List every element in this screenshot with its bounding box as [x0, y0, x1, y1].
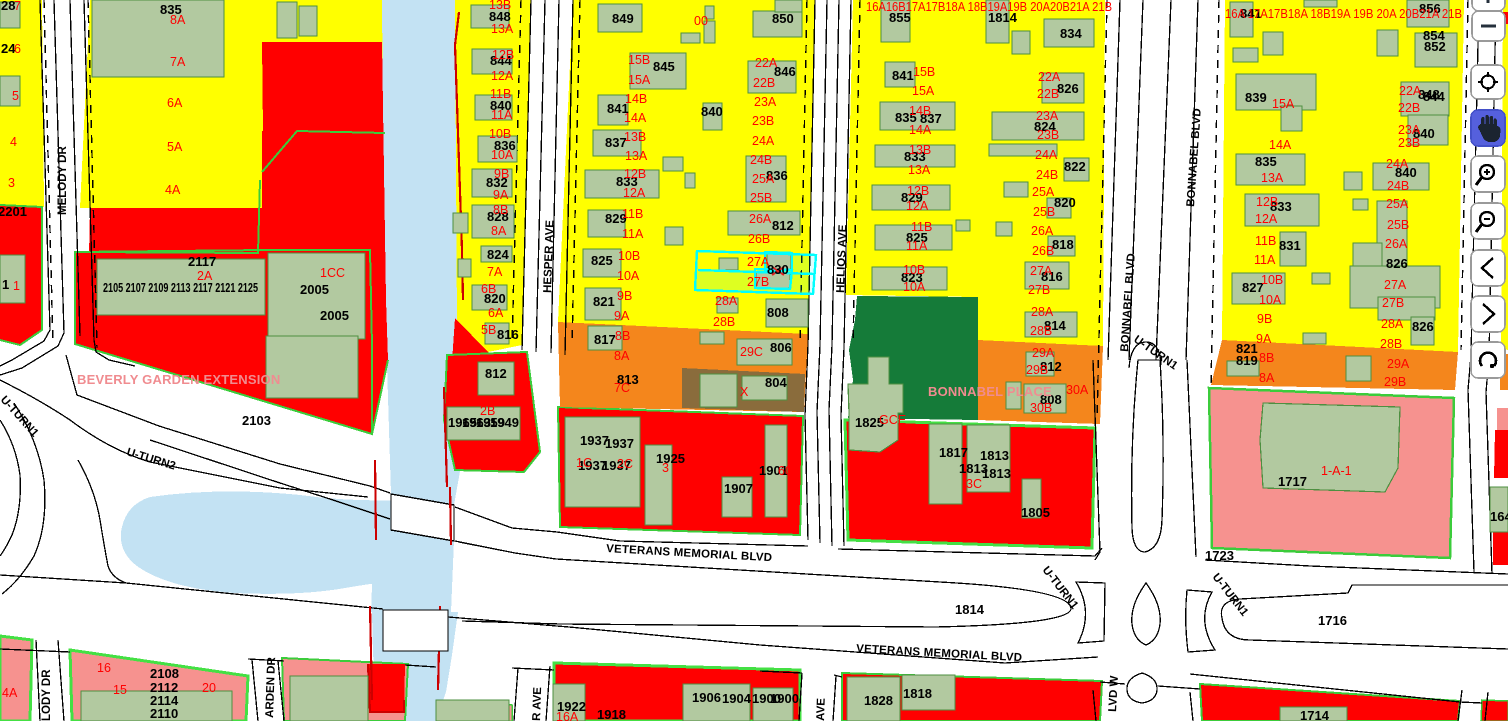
svg-text:7A: 7A — [170, 55, 186, 69]
svg-text:4A: 4A — [2, 686, 18, 700]
svg-text:14B: 14B — [909, 104, 931, 118]
svg-text:852: 852 — [1424, 39, 1446, 54]
svg-text:2108: 2108 — [150, 666, 179, 681]
svg-text:ARDEN DR: ARDEN DR — [264, 656, 278, 718]
svg-text:804: 804 — [765, 375, 787, 390]
svg-text:1-A-1: 1-A-1 — [1321, 464, 1352, 478]
svg-text:2B: 2B — [480, 404, 495, 418]
svg-text:14B: 14B — [625, 92, 647, 106]
svg-text:15A: 15A — [628, 73, 651, 87]
svg-text:830: 830 — [767, 262, 789, 277]
svg-text:2105 2107 2109 2113 2117 2121: 2105 2107 2109 2113 2117 2121 2125 — [103, 280, 258, 295]
svg-text:14A: 14A — [624, 111, 647, 125]
svg-text:8A: 8A — [614, 349, 630, 363]
svg-text:25A: 25A — [1386, 197, 1409, 211]
svg-text:825: 825 — [591, 253, 613, 268]
svg-text:1717: 1717 — [1278, 474, 1307, 489]
svg-text:1805: 1805 — [1021, 505, 1050, 520]
svg-text:8B: 8B — [1259, 351, 1274, 365]
svg-text:29A: 29A — [1387, 357, 1410, 371]
svg-text:60: 60 — [778, 464, 792, 478]
svg-text:26B: 26B — [748, 232, 770, 246]
svg-text:12A: 12A — [491, 69, 514, 83]
svg-text:1937: 1937 — [605, 436, 634, 451]
svg-text:15A: 15A — [912, 84, 935, 98]
svg-text:12A: 12A — [623, 186, 646, 200]
svg-text:13A: 13A — [491, 22, 514, 36]
svg-text:22A: 22A — [755, 56, 778, 70]
svg-text:26B: 26B — [1032, 244, 1054, 258]
svg-text:25A: 25A — [752, 172, 775, 186]
svg-text:12B: 12B — [907, 184, 929, 198]
svg-text:9B: 9B — [494, 167, 509, 181]
svg-text:819: 819 — [1236, 353, 1258, 368]
svg-text:845: 845 — [653, 59, 675, 74]
svg-text:13B: 13B — [489, 0, 511, 12]
svg-text:AVE: AVE — [815, 698, 828, 721]
svg-text:28B: 28B — [713, 315, 735, 329]
svg-text:11A: 11A — [1254, 253, 1276, 267]
svg-text:11A: 11A — [491, 108, 513, 122]
svg-text:22A: 22A — [1399, 84, 1422, 98]
svg-text:831: 831 — [1279, 238, 1301, 253]
svg-text:1907: 1907 — [724, 481, 753, 496]
svg-text:10B: 10B — [489, 127, 511, 141]
svg-text:23A: 23A — [754, 95, 777, 109]
svg-text:4: 4 — [10, 135, 17, 149]
svg-text:8A: 8A — [170, 13, 186, 27]
svg-text:16A16B17A17B18A 18B19A19B 20A2: 16A16B17A17B18A 18B19A19B 20A20B21A 21B — [866, 0, 1112, 14]
svg-text:13B: 13B — [909, 143, 931, 157]
svg-text:23B: 23B — [752, 114, 774, 128]
svg-text:849: 849 — [612, 11, 634, 26]
svg-text:11A: 11A — [906, 239, 928, 253]
svg-text:10B: 10B — [903, 263, 925, 277]
svg-text:10A: 10A — [491, 148, 514, 162]
svg-text:1813: 1813 — [982, 466, 1011, 481]
svg-text:25B: 25B — [1033, 205, 1055, 219]
svg-text:28A: 28A — [715, 294, 738, 308]
svg-text:1904: 1904 — [722, 691, 752, 706]
svg-text:2110: 2110 — [150, 706, 178, 721]
svg-text:1817: 1817 — [939, 445, 968, 460]
svg-text:10B: 10B — [1261, 273, 1283, 287]
svg-text:22B: 22B — [753, 76, 775, 90]
svg-text:1900: 1900 — [770, 691, 799, 706]
svg-text:13A: 13A — [1261, 171, 1284, 185]
svg-text:X: X — [740, 385, 749, 399]
svg-text:HELIOS AVE: HELIOS AVE — [835, 224, 849, 293]
svg-text:26A: 26A — [1031, 224, 1054, 238]
svg-text:12B: 12B — [624, 167, 646, 181]
svg-text:28A: 28A — [1031, 305, 1054, 319]
svg-text:1828: 1828 — [864, 693, 893, 708]
svg-text:1918: 1918 — [597, 707, 626, 721]
svg-text:834: 834 — [1060, 26, 1082, 41]
svg-text:1723: 1723 — [1205, 548, 1234, 563]
svg-text:7C: 7C — [614, 381, 630, 395]
svg-text:00: 00 — [694, 14, 708, 28]
svg-text:1714: 1714 — [1300, 708, 1330, 721]
svg-text:BEVERLY GARDEN EXTENSION: BEVERLY GARDEN EXTENSION — [77, 372, 280, 387]
svg-text:LVD W: LVD W — [1107, 675, 1121, 712]
svg-text:841: 841 — [892, 68, 914, 83]
svg-text:MELODY DR: MELODY DR — [57, 146, 69, 215]
svg-text:1814: 1814 — [955, 602, 985, 617]
svg-text:14A: 14A — [909, 123, 932, 137]
svg-text:812: 812 — [772, 218, 794, 233]
svg-text:25A: 25A — [1032, 185, 1055, 199]
svg-text:164: 164 — [1490, 509, 1508, 524]
svg-text:27A: 27A — [1030, 264, 1053, 278]
svg-text:27A: 27A — [747, 255, 770, 269]
svg-text:2C: 2C — [617, 457, 633, 471]
svg-text:7: 7 — [14, 0, 21, 13]
svg-text:820: 820 — [1054, 195, 1076, 210]
svg-text:22B: 22B — [1037, 87, 1059, 101]
svg-text:818: 818 — [1052, 237, 1074, 252]
svg-text:10B: 10B — [618, 249, 640, 263]
svg-text:15A: 15A — [1272, 97, 1295, 111]
svg-text:9A: 9A — [1256, 332, 1272, 346]
svg-text:29A: 29A — [1032, 346, 1055, 360]
svg-text:20: 20 — [202, 681, 216, 695]
svg-text:24B: 24B — [750, 153, 772, 167]
svg-text:8A: 8A — [491, 224, 507, 238]
svg-text:12B: 12B — [492, 48, 514, 62]
svg-text:22A: 22A — [1038, 70, 1061, 84]
svg-text:4A: 4A — [165, 183, 181, 197]
svg-text:2: 2 — [18, 222, 25, 236]
svg-text:11B: 11B — [490, 87, 511, 101]
svg-text:15: 15 — [113, 683, 127, 697]
svg-text:2117: 2117 — [188, 254, 216, 269]
svg-text:28A: 28A — [1381, 317, 1404, 331]
svg-text:12A: 12A — [906, 199, 929, 213]
svg-text:822: 822 — [1064, 159, 1086, 174]
svg-text:826: 826 — [1057, 81, 1079, 96]
svg-text:24A: 24A — [752, 134, 775, 148]
svg-text:10A: 10A — [1259, 293, 1282, 307]
svg-text:28B: 28B — [1380, 337, 1402, 351]
svg-text:3: 3 — [662, 461, 669, 475]
svg-text:8B: 8B — [615, 329, 630, 343]
svg-text:30B: 30B — [1030, 401, 1052, 415]
svg-text:27B: 27B — [747, 275, 769, 289]
svg-text:839: 839 — [1245, 90, 1267, 105]
svg-text:30A: 30A — [1066, 383, 1089, 397]
svg-text:1C: 1C — [576, 456, 592, 470]
svg-text:812: 812 — [485, 366, 507, 381]
svg-text:10A: 10A — [903, 280, 926, 294]
svg-text:6A: 6A — [488, 306, 504, 320]
svg-text:3C: 3C — [966, 477, 982, 491]
svg-text:29B: 29B — [1384, 375, 1406, 389]
svg-text:821: 821 — [593, 294, 615, 309]
svg-text:12A: 12A — [1255, 212, 1278, 226]
svg-text:1716: 1716 — [1318, 613, 1347, 628]
svg-text:23A: 23A — [1398, 123, 1421, 137]
svg-text:15B: 15B — [913, 65, 935, 79]
svg-text:1818: 1818 — [903, 686, 932, 701]
svg-text:23A: 23A — [1036, 109, 1059, 123]
svg-text:826: 826 — [1412, 319, 1434, 334]
svg-text:5B: 5B — [481, 323, 496, 337]
svg-text:11B: 11B — [622, 207, 643, 221]
svg-text:23B: 23B — [1037, 128, 1059, 142]
svg-text:9A: 9A — [493, 188, 509, 202]
svg-text:24A: 24A — [1386, 157, 1409, 171]
svg-text:27A: 27A — [1384, 278, 1407, 292]
svg-text:6B: 6B — [481, 282, 496, 296]
svg-text:6: 6 — [14, 42, 21, 56]
svg-text:13A: 13A — [625, 149, 648, 163]
svg-text:846: 846 — [774, 64, 796, 79]
svg-text:1: 1 — [2, 277, 9, 292]
svg-text:1CC: 1CC — [320, 266, 345, 280]
svg-text:24A: 24A — [1035, 148, 1058, 162]
svg-text:835: 835 — [1255, 154, 1277, 169]
svg-text:14A: 14A — [1269, 138, 1292, 152]
svg-text:11B: 11B — [1255, 234, 1276, 248]
svg-text:27B: 27B — [1028, 283, 1050, 297]
svg-text:28B: 28B — [1030, 324, 1052, 338]
svg-text:1925: 1925 — [656, 451, 685, 466]
svg-text:840: 840 — [701, 104, 723, 119]
svg-text:1: 1 — [13, 279, 20, 293]
svg-text:2005: 2005 — [300, 282, 329, 297]
svg-text:6A: 6A — [167, 96, 183, 110]
svg-text:24B: 24B — [1036, 168, 1058, 182]
svg-text:26A: 26A — [1385, 237, 1408, 251]
svg-text:2201: 2201 — [0, 204, 27, 219]
svg-text:22B: 22B — [1398, 101, 1420, 115]
svg-text:11B: 11B — [911, 220, 932, 234]
svg-text:826: 826 — [1386, 256, 1408, 271]
svg-text:GCE: GCE — [879, 413, 906, 427]
svg-text:25B: 25B — [750, 191, 772, 205]
svg-text:29C: 29C — [740, 345, 763, 359]
svg-text:11A: 11A — [622, 227, 644, 241]
svg-text:3: 3 — [8, 176, 15, 190]
svg-text:7A: 7A — [487, 265, 503, 279]
svg-text:2005: 2005 — [320, 308, 349, 323]
svg-text:26A: 26A — [749, 212, 772, 226]
svg-text:8A: 8A — [1259, 371, 1275, 385]
svg-text:16A 17A17B18A 18B19A 19B 20A 2: 16A 17A17B18A 18B19A 19B 20A 20B21A 21B — [1225, 7, 1462, 21]
svg-text:10A: 10A — [617, 269, 640, 283]
svg-text:24B: 24B — [1387, 179, 1409, 193]
svg-text:806: 806 — [770, 340, 792, 355]
svg-text:5A: 5A — [167, 140, 183, 154]
svg-text:844: 844 — [1423, 89, 1445, 104]
svg-text:8B: 8B — [493, 203, 508, 217]
svg-text:16A: 16A — [556, 710, 579, 721]
svg-text:808: 808 — [767, 305, 789, 320]
svg-text:5: 5 — [12, 89, 19, 103]
svg-text:824: 824 — [487, 247, 509, 262]
svg-text:LODY DR: LODY DR — [41, 669, 53, 721]
svg-text:2103: 2103 — [242, 413, 271, 428]
svg-text:9B: 9B — [617, 289, 632, 303]
svg-text:816: 816 — [497, 327, 519, 342]
svg-text:29B: 29B — [1026, 363, 1048, 377]
svg-text:25B: 25B — [1387, 218, 1409, 232]
svg-text:13B: 13B — [624, 130, 646, 144]
svg-text:9B: 9B — [1257, 312, 1272, 326]
svg-text:BONNABEL PLACE: BONNABEL PLACE — [928, 384, 1052, 399]
svg-text:9A: 9A — [614, 309, 630, 323]
svg-text:R AVE: R AVE — [531, 687, 544, 721]
svg-text:HESPER AVE: HESPER AVE — [542, 220, 557, 294]
svg-text:850: 850 — [772, 11, 794, 26]
svg-text:27B: 27B — [1382, 296, 1404, 310]
svg-text:15B: 15B — [628, 53, 650, 67]
svg-text:1906: 1906 — [692, 690, 721, 705]
svg-text:13A: 13A — [908, 163, 931, 177]
svg-text:12B: 12B — [1256, 195, 1278, 209]
svg-text:16: 16 — [97, 661, 111, 675]
svg-text:23B: 23B — [1398, 136, 1420, 150]
svg-text:817: 817 — [594, 332, 616, 347]
